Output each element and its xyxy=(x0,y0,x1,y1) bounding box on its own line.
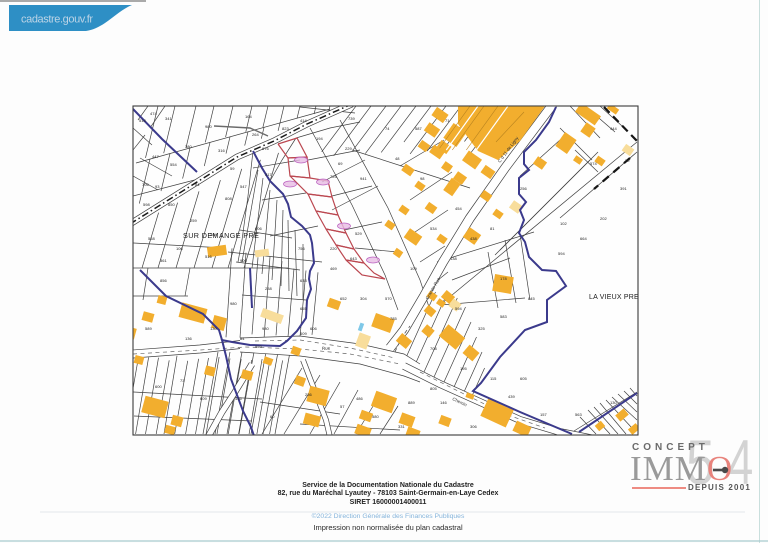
svg-text:609: 609 xyxy=(300,331,307,336)
svg-text:cadastre.gouv.fr: cadastre.gouv.fr xyxy=(21,13,93,25)
svg-text:739: 739 xyxy=(348,116,355,121)
svg-text:823: 823 xyxy=(282,126,289,131)
svg-text:331: 331 xyxy=(398,424,405,429)
svg-text:785: 785 xyxy=(390,316,397,321)
svg-text:130: 130 xyxy=(610,400,617,405)
svg-text:109: 109 xyxy=(410,266,417,271)
svg-text:469: 469 xyxy=(330,266,337,271)
svg-text:805: 805 xyxy=(430,386,437,391)
svg-text:70: 70 xyxy=(625,158,630,163)
svg-text:130: 130 xyxy=(210,326,217,331)
svg-text:71: 71 xyxy=(445,118,450,123)
svg-text:146: 146 xyxy=(440,400,447,405)
svg-text:534: 534 xyxy=(430,226,437,231)
svg-text:136: 136 xyxy=(185,336,192,341)
svg-text:74: 74 xyxy=(385,126,390,131)
svg-text:81: 81 xyxy=(490,226,495,231)
svg-text:194: 194 xyxy=(316,136,323,141)
svg-text:980: 980 xyxy=(205,124,212,129)
svg-text:980: 980 xyxy=(230,301,237,306)
svg-text:980: 980 xyxy=(262,326,269,331)
svg-text:444: 444 xyxy=(610,126,617,131)
svg-text:164: 164 xyxy=(245,114,252,119)
svg-text:304: 304 xyxy=(360,296,367,301)
svg-text:306: 306 xyxy=(470,424,477,429)
svg-text:708: 708 xyxy=(430,346,437,351)
svg-text:380: 380 xyxy=(185,144,192,149)
svg-text:600: 600 xyxy=(155,384,162,389)
svg-text:59: 59 xyxy=(230,166,235,171)
svg-text:84: 84 xyxy=(240,336,245,341)
svg-text:361: 361 xyxy=(160,258,167,263)
svg-text:454: 454 xyxy=(455,206,462,211)
svg-text:845: 845 xyxy=(528,296,535,301)
svg-text:447: 447 xyxy=(152,154,159,159)
svg-text:Rue: Rue xyxy=(322,345,331,351)
svg-text:259: 259 xyxy=(190,218,197,223)
svg-text:889: 889 xyxy=(408,400,415,405)
svg-text:633: 633 xyxy=(300,278,307,283)
svg-text:256: 256 xyxy=(520,186,527,191)
svg-text:106: 106 xyxy=(176,246,183,251)
svg-text:594: 594 xyxy=(455,306,462,311)
svg-text:486: 486 xyxy=(356,396,363,401)
svg-text:60: 60 xyxy=(270,414,275,419)
svg-text:652: 652 xyxy=(340,296,347,301)
svg-text:236: 236 xyxy=(305,392,312,397)
svg-text:605: 605 xyxy=(520,376,527,381)
svg-text:73: 73 xyxy=(180,378,185,383)
svg-text:341: 341 xyxy=(165,116,172,121)
svg-text:518: 518 xyxy=(139,118,146,123)
svg-text:439: 439 xyxy=(508,394,515,399)
svg-text:416: 416 xyxy=(235,396,242,401)
svg-text:438: 438 xyxy=(470,236,477,241)
svg-text:606: 606 xyxy=(310,326,317,331)
svg-text:LA VIEUX PRE: LA VIEUX PRE xyxy=(589,294,639,301)
svg-text:589: 589 xyxy=(145,326,152,331)
svg-text:725: 725 xyxy=(330,174,337,179)
svg-text:178: 178 xyxy=(500,276,507,281)
svg-text:84: 84 xyxy=(195,182,200,187)
svg-text:474: 474 xyxy=(150,111,157,116)
svg-text:264: 264 xyxy=(252,132,259,137)
svg-text:325: 325 xyxy=(478,326,485,331)
svg-text:115: 115 xyxy=(490,376,497,381)
svg-text:391: 391 xyxy=(620,186,627,191)
svg-text:941: 941 xyxy=(360,176,367,181)
svg-text:SUR DEMANGE PRE: SUR DEMANGE PRE xyxy=(183,231,259,240)
svg-text:580: 580 xyxy=(372,414,379,419)
svg-text:102: 102 xyxy=(560,221,567,226)
svg-text:955: 955 xyxy=(255,344,262,349)
svg-text:57: 57 xyxy=(340,404,345,409)
svg-text:609: 609 xyxy=(200,396,207,401)
svg-text:69: 69 xyxy=(338,161,343,166)
svg-text:570: 570 xyxy=(385,296,392,301)
svg-text:655: 655 xyxy=(300,306,307,311)
svg-text:598: 598 xyxy=(143,202,150,207)
svg-text:220: 220 xyxy=(330,246,337,251)
svg-text:438: 438 xyxy=(450,256,457,261)
svg-text:664: 664 xyxy=(580,236,587,241)
svg-text:547: 547 xyxy=(240,184,247,189)
svg-text:808: 808 xyxy=(225,196,232,201)
svg-text:195: 195 xyxy=(460,366,467,371)
svg-text:563: 563 xyxy=(575,412,582,417)
svg-text:516: 516 xyxy=(205,254,212,259)
svg-text:238: 238 xyxy=(265,286,272,291)
svg-text:906: 906 xyxy=(240,258,247,263)
svg-text:676: 676 xyxy=(262,146,269,151)
svg-text:706: 706 xyxy=(142,182,149,187)
svg-text:317: 317 xyxy=(265,172,272,177)
svg-text:229: 229 xyxy=(345,146,352,151)
svg-text:529: 529 xyxy=(355,231,362,236)
svg-text:157: 157 xyxy=(540,412,547,417)
svg-text:98: 98 xyxy=(420,176,425,181)
svg-text:574: 574 xyxy=(590,161,597,166)
svg-text:850: 850 xyxy=(168,202,175,207)
svg-text:316: 316 xyxy=(218,148,225,153)
svg-text:594: 594 xyxy=(558,251,565,256)
svg-text:583: 583 xyxy=(500,314,507,319)
svg-text:558: 558 xyxy=(148,236,155,241)
svg-text:93: 93 xyxy=(155,184,160,189)
svg-text:202: 202 xyxy=(600,216,607,221)
svg-text:756: 756 xyxy=(298,246,305,251)
svg-text:554: 554 xyxy=(170,162,177,167)
svg-text:414: 414 xyxy=(300,118,307,123)
svg-text:48: 48 xyxy=(395,156,400,161)
svg-text:643: 643 xyxy=(350,256,357,261)
svg-text:856: 856 xyxy=(160,278,167,283)
svg-text:587: 587 xyxy=(415,126,422,131)
